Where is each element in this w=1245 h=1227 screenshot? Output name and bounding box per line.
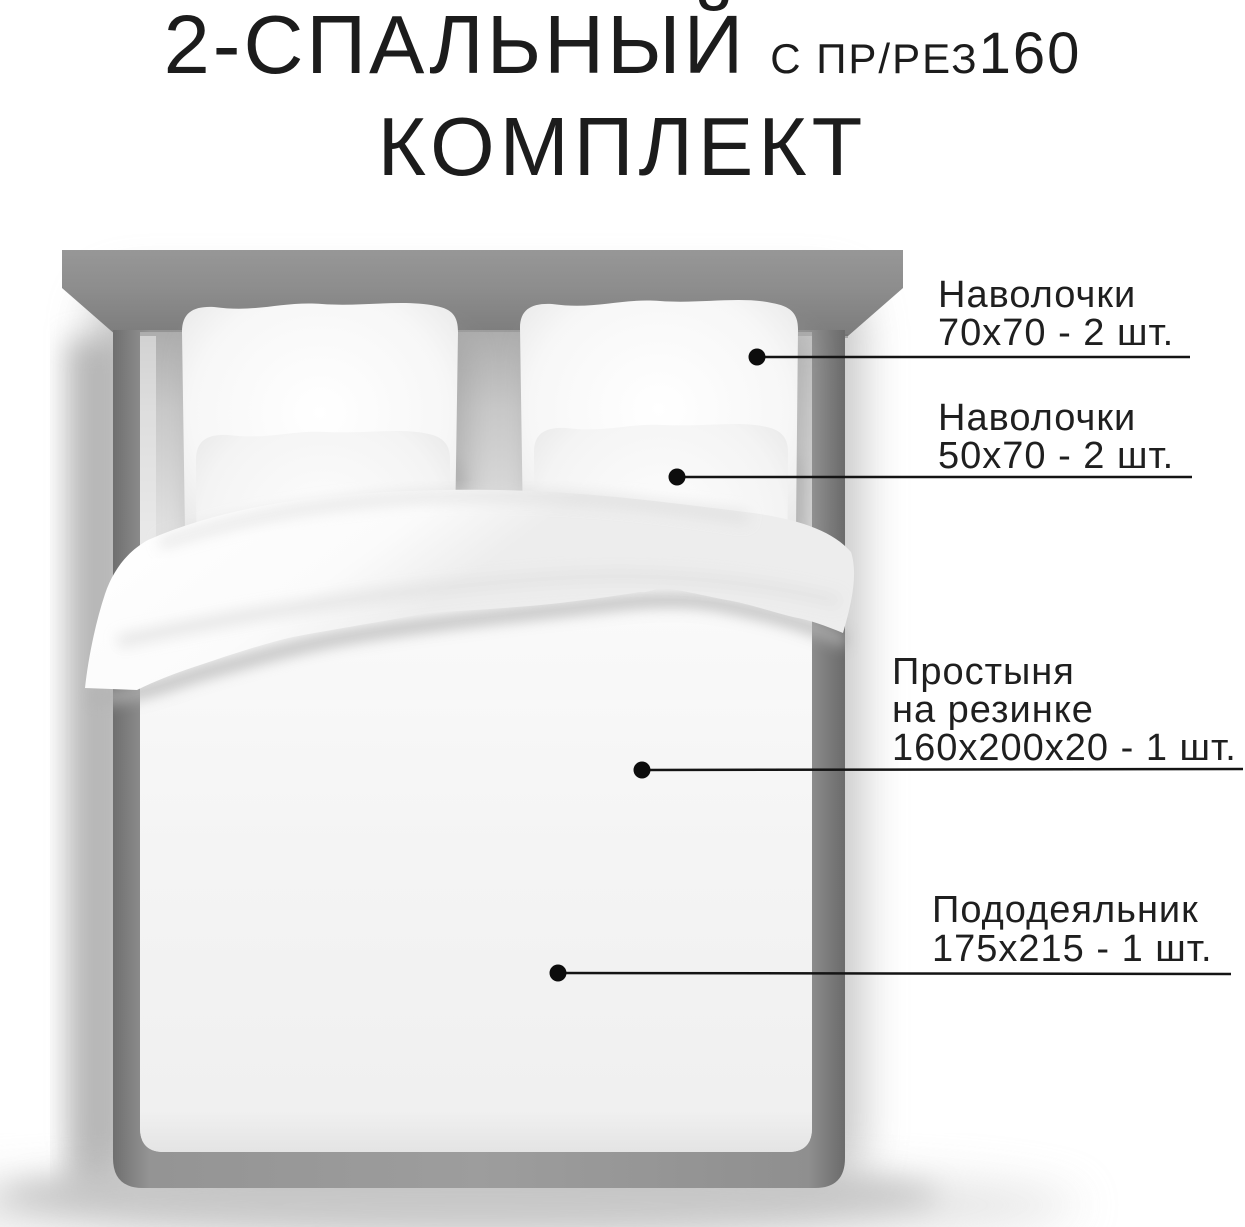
callout-label-line: Наволочки — [938, 399, 1174, 437]
callout-dot-fitted-sheet — [634, 762, 651, 779]
title-variant-text: С ПР/РЕЗ — [770, 35, 978, 82]
callout-label-line: на резинке — [892, 691, 1237, 729]
callout-line-duvet-cover — [558, 973, 1231, 974]
callout-label-line: 50х70 - 2 шт. — [938, 437, 1174, 475]
callout-label-line: 70х70 - 2 шт. — [938, 314, 1174, 352]
callout-label-line: Наволочки — [938, 276, 1174, 314]
callout-dot-duvet-cover — [550, 965, 567, 982]
callout-label-pillowcases-50: Наволочки 50х70 - 2 шт. — [938, 399, 1174, 475]
page-title-line2: КОМПЛЕКТ — [0, 105, 1245, 188]
callout-dot-pillowcases-70 — [749, 349, 766, 366]
bedding-set-infographic: 2-СПАЛЬНЫЙ С ПР/РЕЗ160 КОМПЛЕКТ Наволочк… — [0, 0, 1245, 1227]
callout-label-line: Простыня — [892, 653, 1237, 691]
callout-line-fitted-sheet — [642, 769, 1243, 770]
callout-dot-pillowcases-50 — [669, 469, 686, 486]
title-variant: С ПР/РЕЗ160 — [770, 20, 1081, 87]
callout-label-line: Пододеяльник — [932, 891, 1213, 930]
page-title-line1: 2-СПАЛЬНЫЙ С ПР/РЕЗ160 — [0, 3, 1245, 87]
title-size-text: 2-СПАЛЬНЫЙ — [164, 3, 747, 86]
callout-label-pillowcases-70: Наволочки 70х70 - 2 шт. — [938, 276, 1174, 352]
callout-label-duvet-cover: Пододеяльник 175х215 - 1 шт. — [932, 891, 1213, 969]
callout-label-line: 160х200х20 - 1 шт. — [892, 729, 1237, 767]
callout-label-line: 175х215 - 1 шт. — [932, 930, 1213, 969]
callout-label-fitted-sheet: Простыня на резинке 160х200х20 - 1 шт. — [892, 653, 1237, 767]
title-variant-number: 160 — [979, 21, 1082, 86]
